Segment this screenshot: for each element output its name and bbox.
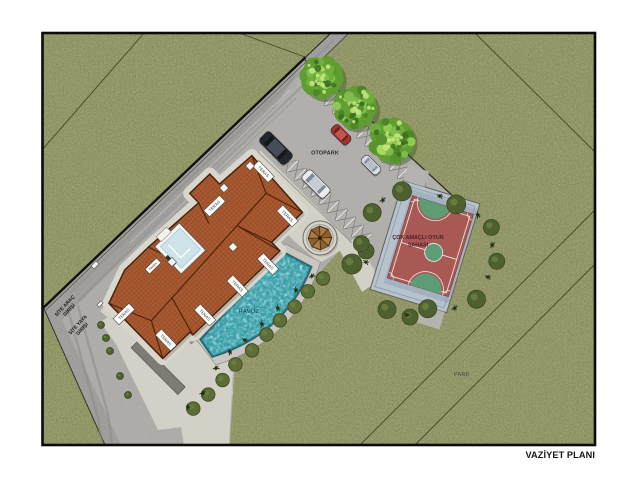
svg-text:HAVUZ: HAVUZ <box>238 309 259 315</box>
svg-text:VAZİYET PLANI: VAZİYET PLANI <box>525 450 595 460</box>
svg-text:ÇOK AMAÇLI OYUN: ÇOK AMAÇLI OYUN <box>392 235 443 241</box>
svg-text:PARK: PARK <box>454 372 470 378</box>
svg-text:OTOPARK: OTOPARK <box>311 151 339 157</box>
svg-text:SAHASI: SAHASI <box>408 243 429 249</box>
